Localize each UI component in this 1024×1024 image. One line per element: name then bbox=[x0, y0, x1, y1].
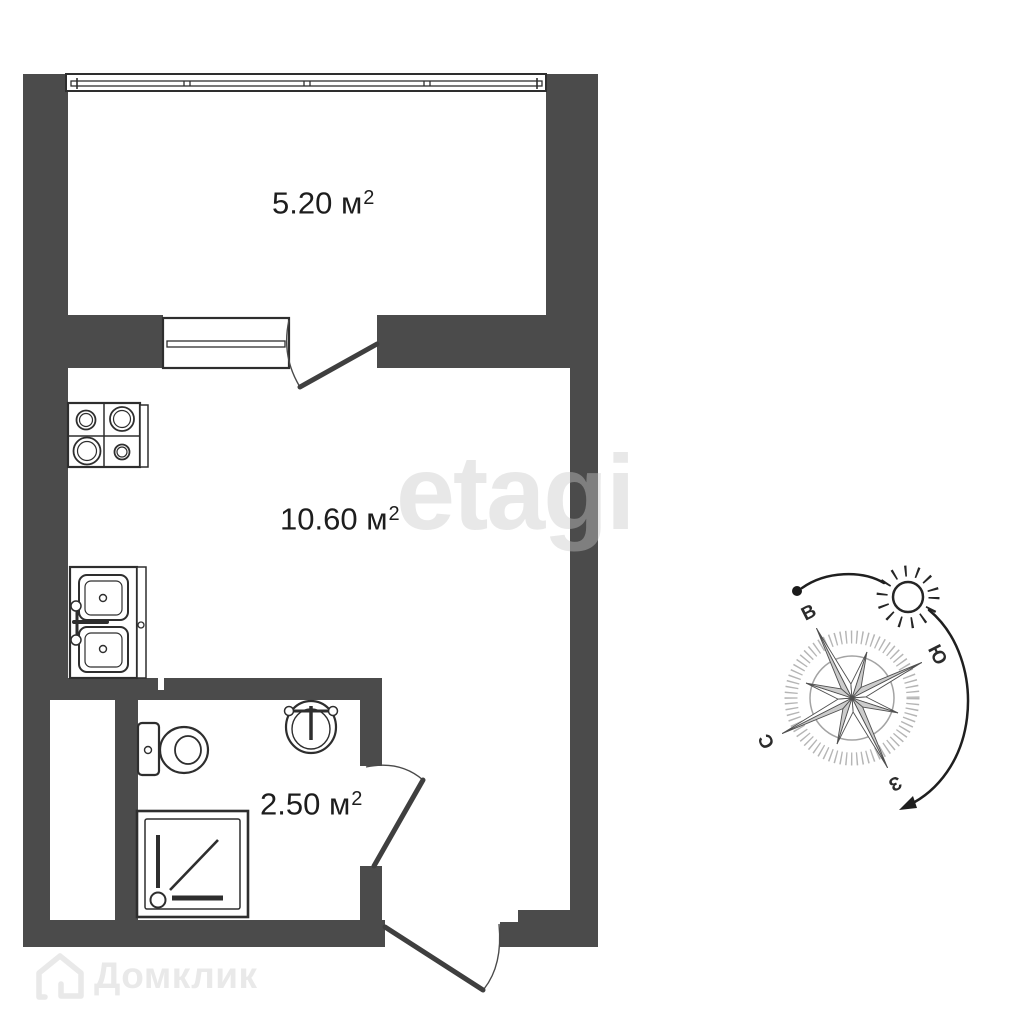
wall-bottom-left bbox=[23, 920, 385, 947]
sun-path-start-dot bbox=[792, 586, 802, 596]
wall-bathroom-right-bottom bbox=[360, 866, 382, 922]
balcony-door bbox=[287, 320, 377, 387]
area-label-bathroom: 2.50 м2 bbox=[260, 787, 362, 819]
compass: В Ю С З bbox=[747, 571, 968, 810]
floorplan-page: В Ю С З 5.20 м2 10.60 м2 2.50 м2 etagi bbox=[0, 0, 1024, 1024]
compass-label-south: Ю bbox=[923, 642, 951, 669]
toilet bbox=[138, 723, 208, 775]
watermark-domclick-text: Домклик bbox=[94, 955, 258, 997]
house-icon bbox=[34, 952, 86, 1000]
wall-divider-left bbox=[66, 315, 163, 368]
arrowhead bbox=[899, 796, 917, 810]
wall-bathroom-right-top bbox=[360, 700, 382, 766]
watermark-domclick: Домклик bbox=[34, 952, 258, 1000]
bathroom-sink bbox=[285, 701, 338, 753]
compass-label-east: В bbox=[798, 601, 820, 626]
stove bbox=[68, 403, 148, 467]
compass-label-west: З bbox=[885, 771, 905, 795]
wall-balcony-right bbox=[546, 74, 598, 318]
sun-path-arrow bbox=[792, 574, 968, 810]
sun-icon bbox=[882, 571, 934, 623]
wall-gap-tick bbox=[158, 676, 164, 690]
wall-divider-right bbox=[377, 315, 598, 368]
watermark-etagi: etagi bbox=[396, 440, 633, 546]
window-top bbox=[66, 74, 546, 91]
shower bbox=[137, 811, 248, 917]
wall-bottom-right-stub bbox=[500, 922, 518, 947]
shaft-interior bbox=[50, 700, 115, 920]
area-label-balcony: 5.20 м2 bbox=[272, 186, 374, 218]
compass-rose-star bbox=[747, 593, 957, 803]
wall-shaft-right bbox=[115, 700, 138, 922]
balcony-window bbox=[163, 318, 289, 368]
kitchen-sink bbox=[70, 567, 146, 678]
area-label-living: 10.60 м2 bbox=[280, 502, 400, 534]
bathroom-door bbox=[366, 765, 423, 866]
entrance-door bbox=[385, 924, 500, 990]
compass-label-north: С bbox=[754, 730, 779, 752]
wall-bottom-right-block bbox=[518, 910, 598, 947]
wall-mid-horizontal bbox=[23, 678, 382, 700]
